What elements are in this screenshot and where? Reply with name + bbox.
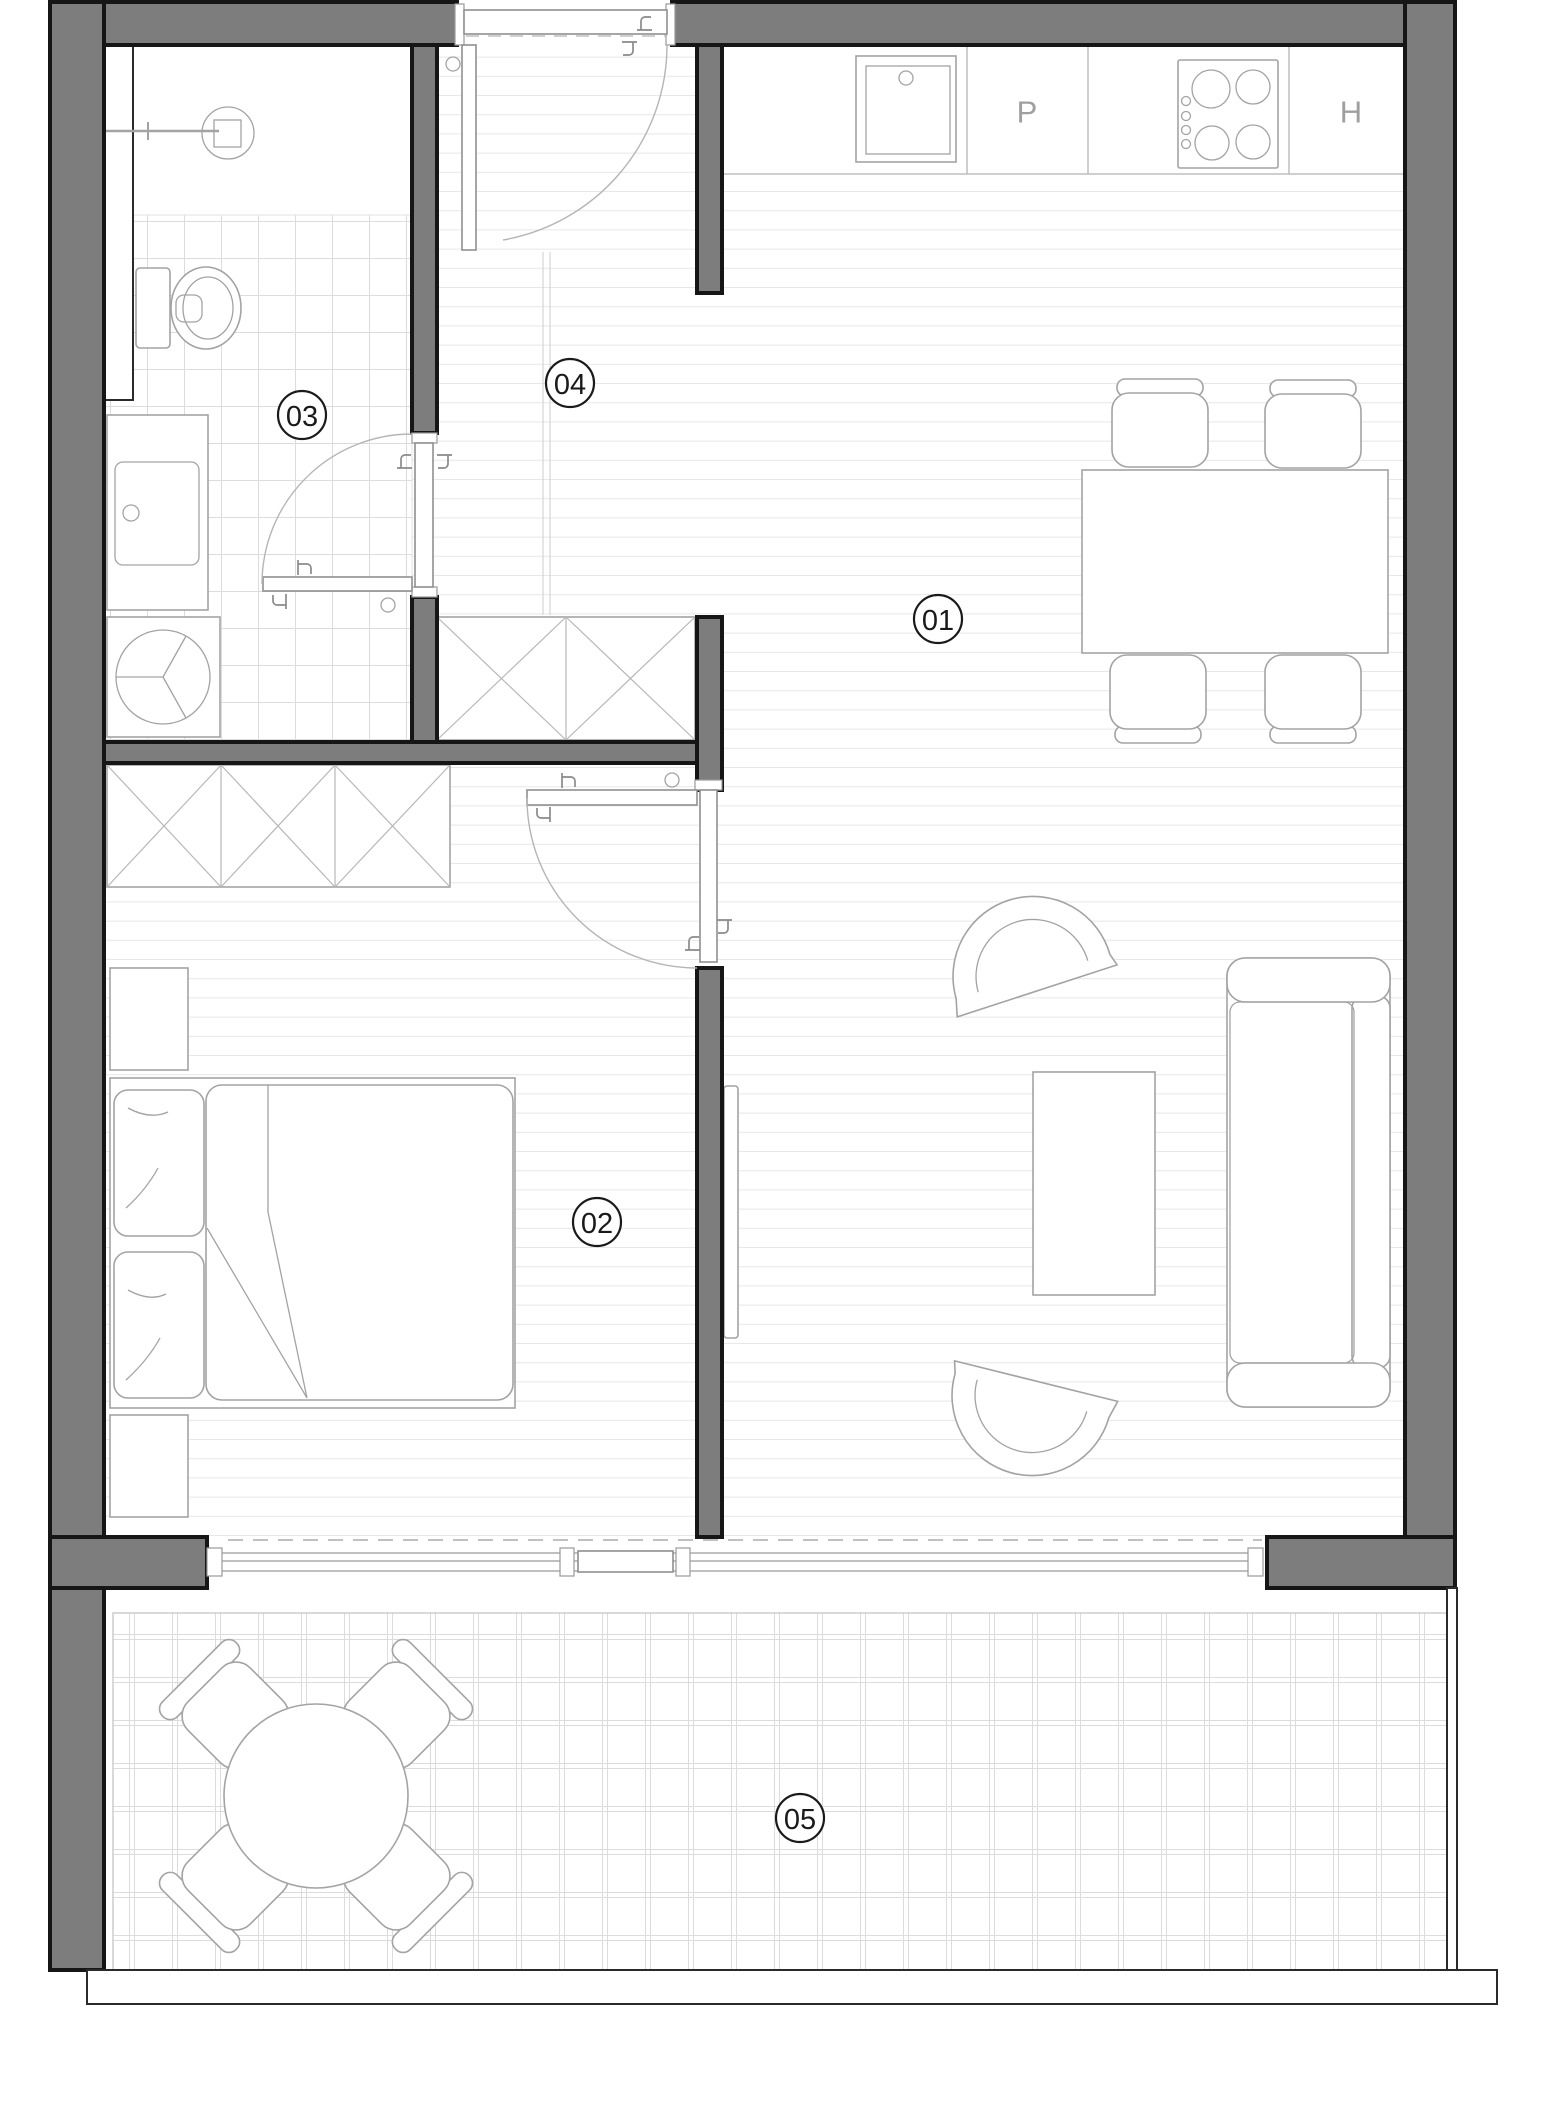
dishwasher-letter: P xyxy=(1017,95,1038,130)
svg-text:05: 05 xyxy=(784,1804,816,1836)
facade-windows xyxy=(207,1540,1263,1576)
nightstand xyxy=(110,968,188,1070)
wall-bathroom-upper xyxy=(412,45,437,433)
svg-text:04: 04 xyxy=(554,369,586,401)
sofa-armrest xyxy=(1227,958,1390,1002)
wall-right xyxy=(1405,2,1455,1588)
hallway-closet xyxy=(437,617,695,740)
svg-text:01: 01 xyxy=(922,605,954,637)
wall-top-right xyxy=(672,2,1455,45)
room-label-bedroom: 02 xyxy=(573,1198,621,1246)
room-label-hallway: 04 xyxy=(546,359,594,407)
wall-top-left xyxy=(50,2,457,45)
double-bed xyxy=(110,1078,515,1408)
tv-icon xyxy=(724,1086,738,1338)
wall-facade-right xyxy=(1267,1537,1455,1588)
washing-machine-icon xyxy=(107,617,220,737)
svg-text:02: 02 xyxy=(581,1208,613,1240)
bedroom-wardrobe xyxy=(107,765,450,887)
toilet-icon xyxy=(136,267,241,349)
balcony-door-leaf xyxy=(578,1551,673,1572)
duvet xyxy=(206,1085,513,1400)
bathroom-vanity xyxy=(107,415,208,610)
sofa-backrest xyxy=(1352,996,1390,1368)
fridge-letter: H xyxy=(1340,95,1362,130)
dining-chair xyxy=(1110,655,1206,743)
sofa xyxy=(1227,958,1390,1407)
sofa-armrest xyxy=(1227,1363,1390,1407)
balcony-slab-edge xyxy=(87,1970,1497,2004)
wall-center-lower xyxy=(697,968,722,1537)
floor-plan-drawing: P H xyxy=(0,0,1562,2115)
dining-chair xyxy=(1265,655,1361,743)
wall-bathroom-lower xyxy=(412,597,437,742)
window-frame-end xyxy=(207,1548,222,1576)
balcony-door-frame xyxy=(676,1548,690,1576)
room-label-balcony: 05 xyxy=(776,1794,824,1842)
wall-facade-left xyxy=(50,1537,207,1588)
wall-center-mid xyxy=(697,617,722,790)
pillow xyxy=(114,1252,204,1398)
balcony-right-edge xyxy=(1447,1588,1457,1970)
wall-center-upper xyxy=(697,45,722,293)
coffee-table xyxy=(1033,1072,1155,1295)
floor-plan-canvas: P H xyxy=(0,0,1562,2115)
room-label-bathroom: 03 xyxy=(278,391,326,439)
shower-panel xyxy=(104,45,133,400)
dining-chair xyxy=(1112,379,1208,467)
cooktop-icon xyxy=(1178,60,1278,168)
wall-left xyxy=(50,2,104,1970)
dining-table xyxy=(1082,470,1388,653)
wall-bedroom-top xyxy=(104,742,722,763)
window-frame-end xyxy=(1248,1548,1263,1576)
kitchen-counter: P H xyxy=(722,45,1408,174)
dining-chair xyxy=(1265,380,1361,468)
room-label-living: 01 xyxy=(914,595,962,643)
nightstand xyxy=(110,1415,188,1517)
balcony-table xyxy=(224,1704,408,1888)
svg-text:03: 03 xyxy=(286,401,318,433)
window-mullion xyxy=(560,1548,574,1576)
kitchen-sink-icon xyxy=(856,56,956,162)
pillow xyxy=(114,1090,204,1236)
